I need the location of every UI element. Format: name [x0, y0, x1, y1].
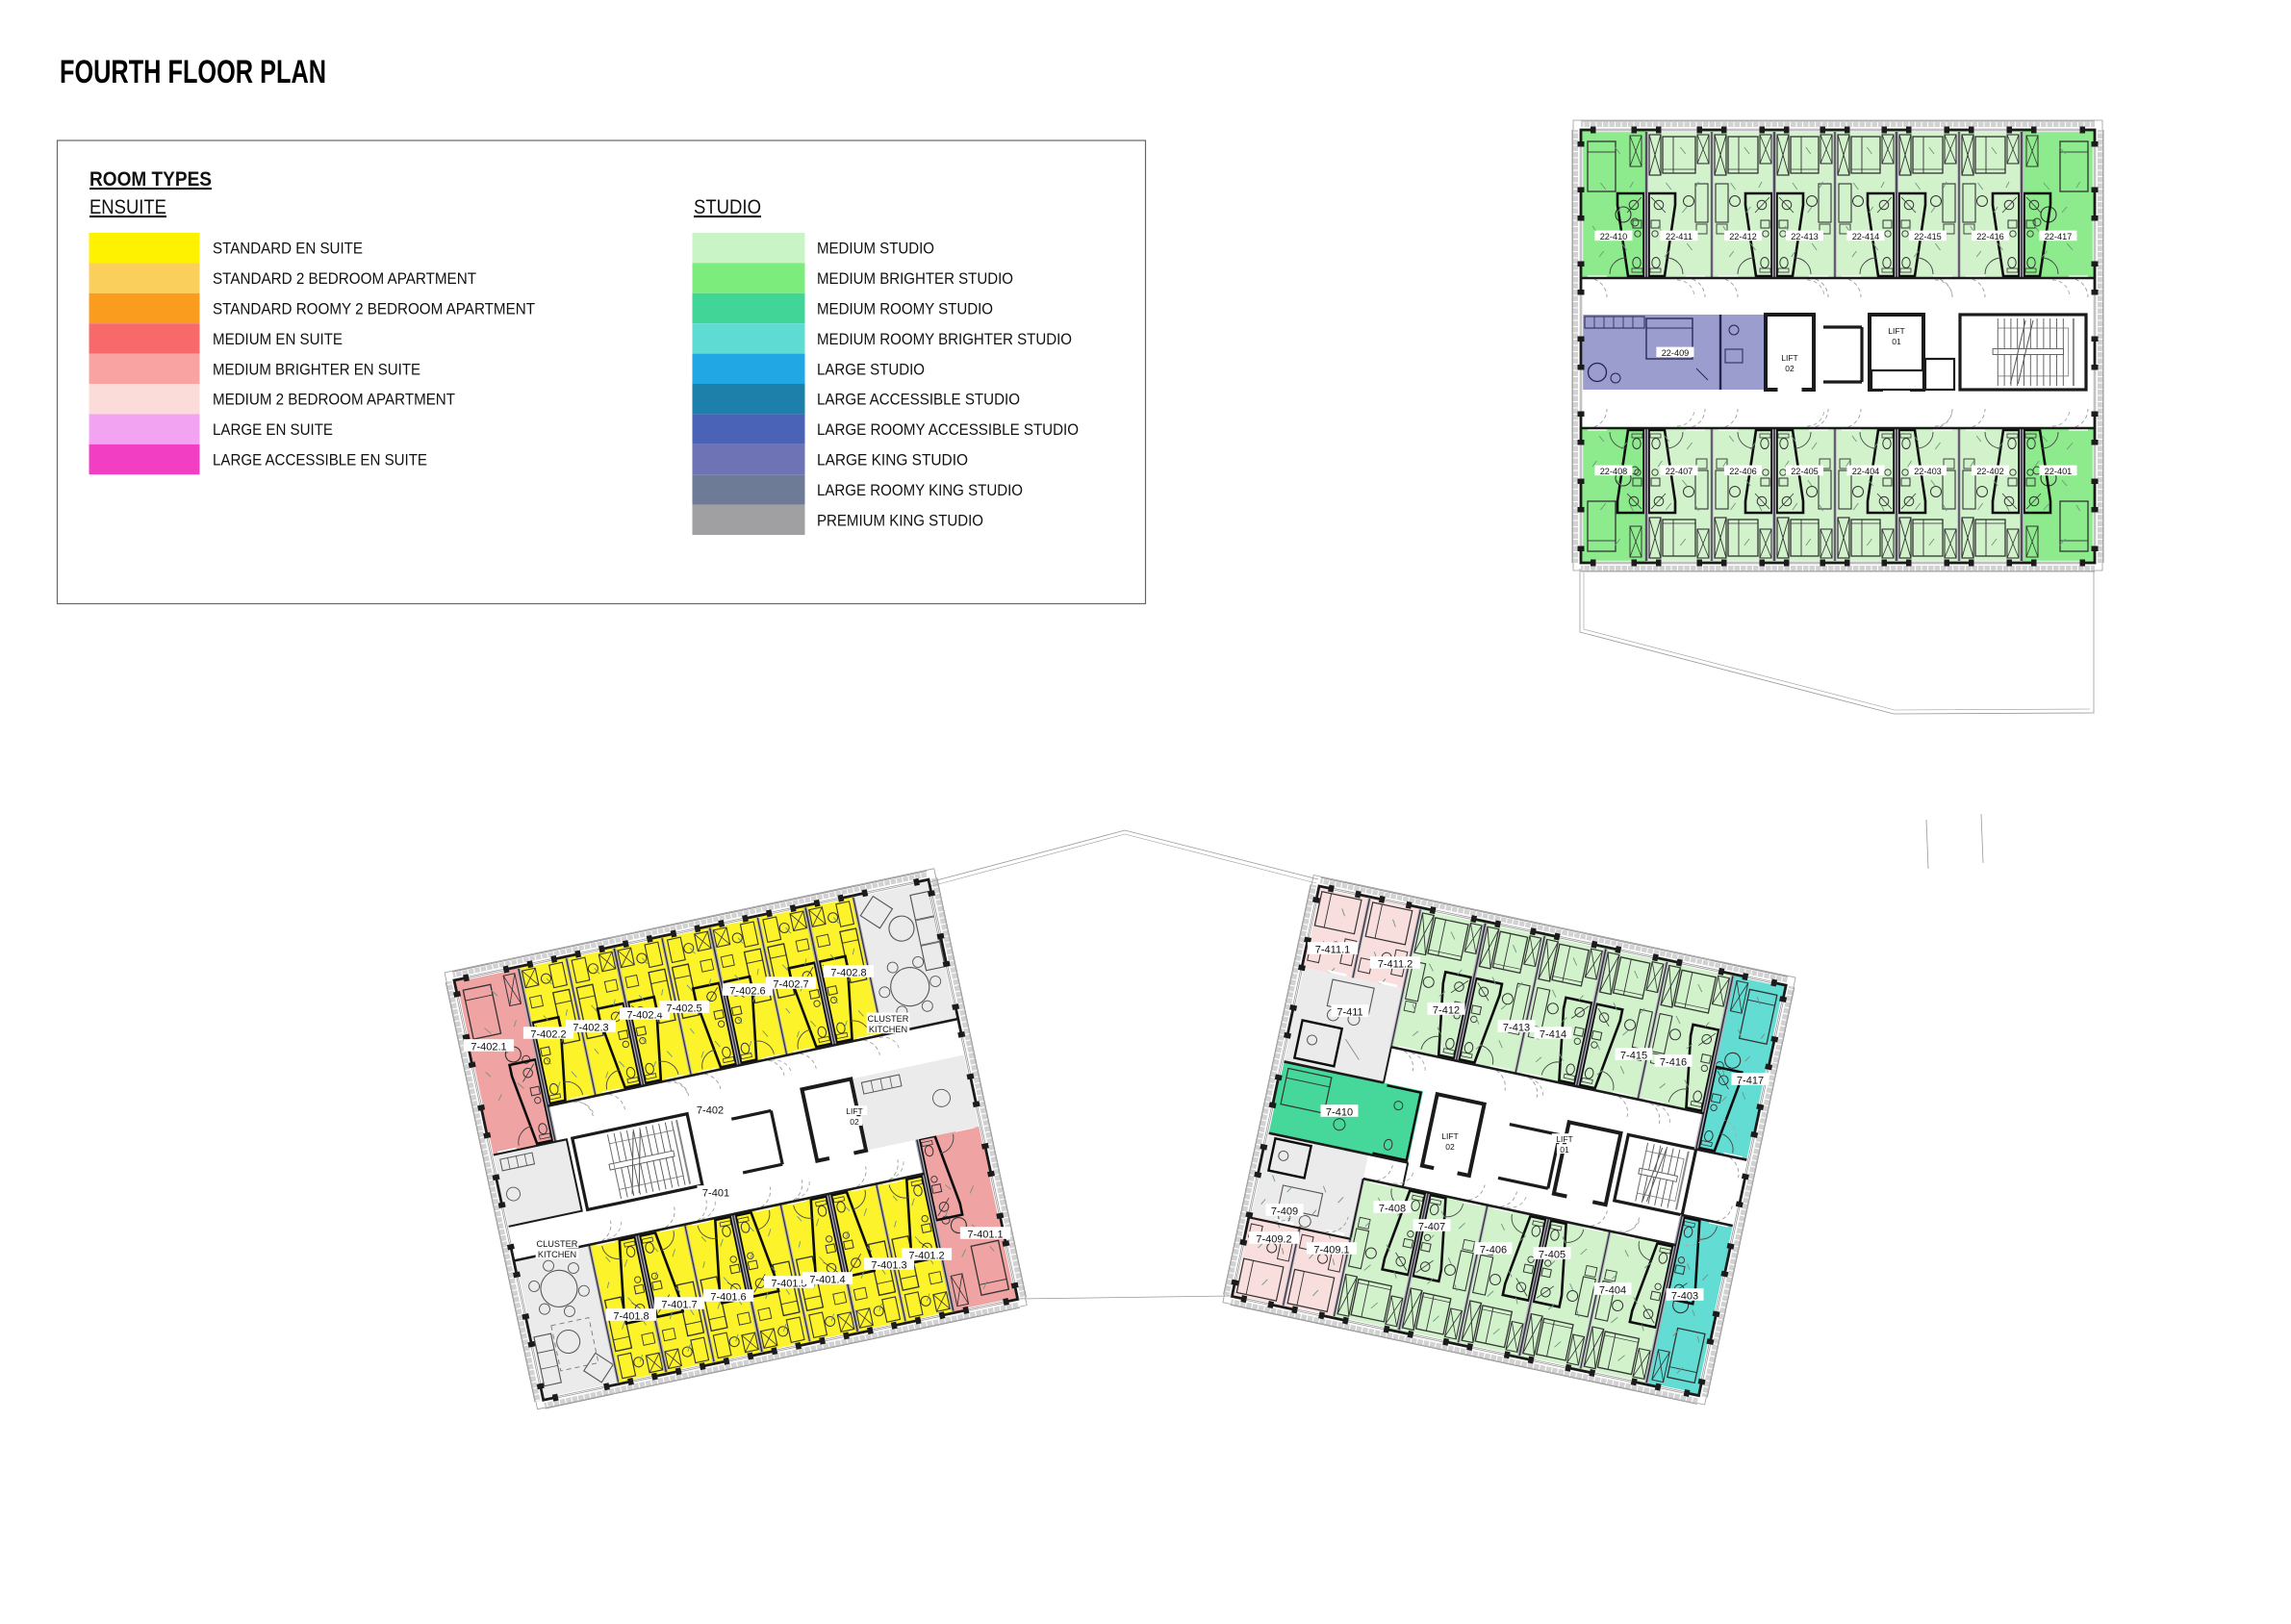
svg-text:7-401: 7-401 [702, 1187, 729, 1199]
svg-text:ROOM TYPES: ROOM TYPES [89, 168, 212, 190]
svg-text:7-402.1: 7-402.1 [471, 1041, 506, 1053]
svg-text:7-414: 7-414 [1540, 1028, 1566, 1040]
svg-text:7-401.2: 7-401.2 [908, 1250, 944, 1261]
svg-text:LARGE STUDIO: LARGE STUDIO [817, 360, 925, 378]
svg-text:7-402.7: 7-402.7 [773, 978, 808, 990]
svg-text:22-406: 22-406 [1729, 467, 1757, 476]
svg-text:LARGE ROOMY KING STUDIO: LARGE ROOMY KING STUDIO [817, 481, 1023, 499]
svg-text:7-402.4: 7-402.4 [626, 1009, 662, 1021]
svg-text:MEDIUM STUDIO: MEDIUM STUDIO [817, 240, 934, 258]
svg-text:MEDIUM ROOMY STUDIO: MEDIUM ROOMY STUDIO [817, 300, 993, 318]
svg-text:01: 01 [1560, 1145, 1569, 1155]
svg-text:7-402.2: 7-402.2 [530, 1028, 566, 1040]
svg-text:7-409: 7-409 [1271, 1205, 1298, 1217]
svg-text:STANDARD ROOMY 2 BEDROOM APART: STANDARD ROOMY 2 BEDROOM APARTMENT [213, 300, 535, 318]
svg-text:STUDIO: STUDIO [694, 196, 761, 218]
svg-text:22-415: 22-415 [1914, 232, 1942, 241]
svg-text:7-409.1: 7-409.1 [1313, 1244, 1349, 1256]
svg-text:LARGE ACCESSIBLE STUDIO: LARGE ACCESSIBLE STUDIO [817, 391, 1020, 409]
svg-text:7-408: 7-408 [1379, 1203, 1406, 1214]
svg-text:7-405: 7-405 [1539, 1249, 1566, 1260]
svg-text:KITCHEN: KITCHEN [869, 1025, 907, 1034]
svg-text:7-415: 7-415 [1620, 1050, 1647, 1061]
svg-text:22-408: 22-408 [1600, 467, 1628, 476]
svg-text:7-417: 7-417 [1737, 1075, 1764, 1086]
svg-text:7-412: 7-412 [1433, 1004, 1460, 1016]
svg-text:02: 02 [1445, 1142, 1455, 1152]
svg-text:7-407: 7-407 [1418, 1221, 1445, 1232]
svg-text:MEDIUM BRIGHTER STUDIO: MEDIUM BRIGHTER STUDIO [817, 269, 1013, 288]
svg-text:LARGE ROOMY ACCESSIBLE STUDIO: LARGE ROOMY ACCESSIBLE STUDIO [817, 420, 1079, 439]
svg-text:7-401.6: 7-401.6 [710, 1291, 746, 1303]
svg-text:MEDIUM 2 BEDROOM APARTMENT: MEDIUM 2 BEDROOM APARTMENT [213, 391, 455, 409]
svg-text:7-401.3: 7-401.3 [871, 1259, 906, 1271]
svg-text:02: 02 [850, 1117, 859, 1127]
svg-text:7-402: 7-402 [697, 1104, 724, 1116]
svg-text:7-402.8: 7-402.8 [830, 967, 866, 978]
svg-text:FOURTH FLOOR PLAN: FOURTH FLOOR PLAN [60, 54, 326, 90]
svg-text:STANDARD EN SUITE: STANDARD EN SUITE [213, 240, 363, 258]
svg-text:LIFT: LIFT [1888, 326, 1904, 336]
svg-text:22-404: 22-404 [1852, 467, 1880, 476]
svg-text:22-412: 22-412 [1729, 232, 1757, 241]
svg-text:CLUSTER: CLUSTER [868, 1014, 909, 1024]
svg-text:02: 02 [1785, 364, 1795, 373]
svg-text:MEDIUM EN SUITE: MEDIUM EN SUITE [213, 330, 343, 348]
svg-text:7-401.5: 7-401.5 [771, 1278, 806, 1289]
svg-text:7-411: 7-411 [1336, 1006, 1362, 1018]
svg-text:STANDARD 2 BEDROOM APARTMENT: STANDARD 2 BEDROOM APARTMENT [213, 269, 476, 288]
svg-text:7-411.2: 7-411.2 [1378, 958, 1413, 970]
svg-text:LARGE ACCESSIBLE EN SUITE: LARGE ACCESSIBLE EN SUITE [213, 451, 427, 469]
svg-text:22-407: 22-407 [1666, 467, 1693, 476]
svg-text:22-416: 22-416 [1976, 232, 2004, 241]
svg-text:7-404: 7-404 [1599, 1284, 1626, 1296]
svg-text:LARGE EN SUITE: LARGE EN SUITE [213, 420, 333, 439]
svg-text:7-403: 7-403 [1671, 1290, 1698, 1302]
svg-text:7-401.7: 7-401.7 [661, 1299, 697, 1310]
svg-text:CLUSTER: CLUSTER [537, 1239, 578, 1249]
svg-text:MEDIUM ROOMY BRIGHTER STUDIO: MEDIUM ROOMY BRIGHTER STUDIO [817, 330, 1072, 348]
svg-text:7-411.1: 7-411.1 [1315, 944, 1351, 955]
svg-text:01: 01 [1892, 337, 1901, 346]
svg-text:7-401.4: 7-401.4 [809, 1274, 845, 1285]
svg-text:7-402.5: 7-402.5 [666, 1002, 701, 1014]
svg-text:7-409.2: 7-409.2 [1256, 1233, 1291, 1245]
svg-text:22-417: 22-417 [2045, 232, 2073, 241]
svg-text:22-410: 22-410 [1600, 232, 1628, 241]
svg-text:7-406: 7-406 [1480, 1244, 1507, 1256]
svg-text:22-405: 22-405 [1791, 467, 1819, 476]
svg-text:LIFT: LIFT [846, 1106, 862, 1116]
svg-text:22-409: 22-409 [1662, 348, 1690, 358]
svg-text:PREMIUM KING STUDIO: PREMIUM KING STUDIO [817, 511, 983, 529]
svg-text:MEDIUM BRIGHTER EN SUITE: MEDIUM BRIGHTER EN SUITE [213, 360, 420, 378]
svg-text:7-402.6: 7-402.6 [729, 985, 765, 997]
svg-text:22-403: 22-403 [1914, 467, 1942, 476]
svg-text:7-402.3: 7-402.3 [573, 1022, 608, 1033]
svg-text:LIFT: LIFT [1556, 1134, 1572, 1144]
svg-text:22-402: 22-402 [1976, 467, 2004, 476]
svg-text:LIFT: LIFT [1441, 1131, 1458, 1141]
svg-text:22-413: 22-413 [1791, 232, 1819, 241]
svg-text:7-416: 7-416 [1660, 1056, 1687, 1068]
svg-text:22-401: 22-401 [2045, 467, 2073, 476]
svg-text:LIFT: LIFT [1781, 353, 1797, 363]
svg-text:7-413: 7-413 [1503, 1022, 1530, 1033]
svg-text:22-414: 22-414 [1852, 232, 1880, 241]
svg-text:LARGE KING STUDIO: LARGE KING STUDIO [817, 451, 968, 469]
svg-text:ENSUITE: ENSUITE [89, 196, 166, 218]
svg-text:7-401.1: 7-401.1 [967, 1229, 1003, 1240]
svg-text:7-410: 7-410 [1326, 1106, 1353, 1118]
svg-text:KITCHEN: KITCHEN [538, 1250, 576, 1259]
svg-text:22-411: 22-411 [1666, 232, 1693, 241]
svg-text:7-401.8: 7-401.8 [613, 1310, 649, 1322]
